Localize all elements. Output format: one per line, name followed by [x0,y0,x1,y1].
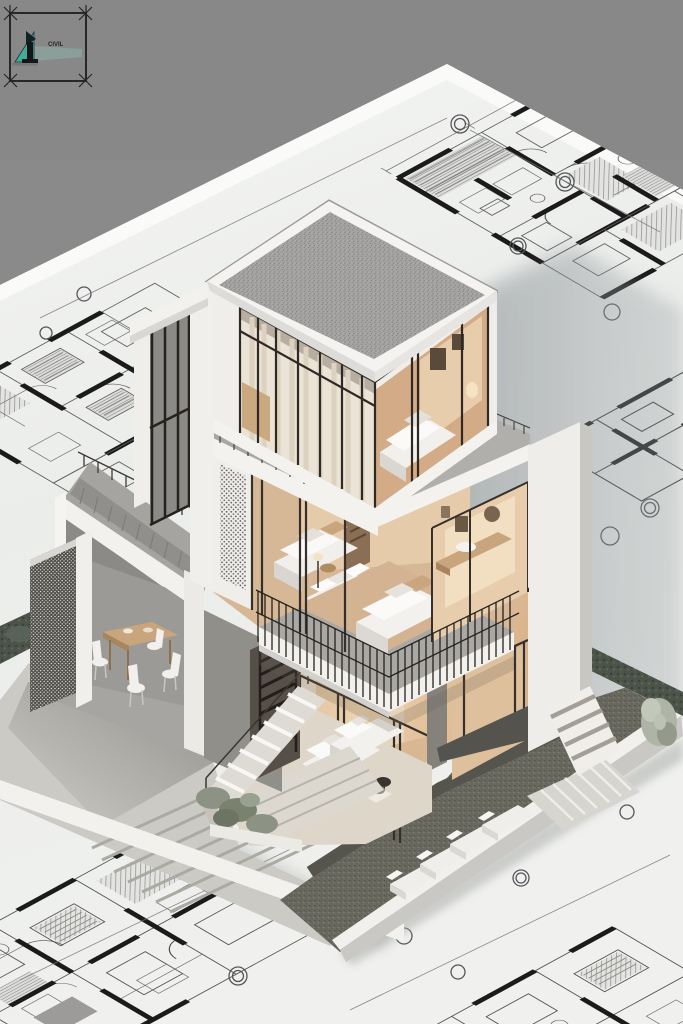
svg-text:CIVIL: CIVIL [48,42,64,48]
